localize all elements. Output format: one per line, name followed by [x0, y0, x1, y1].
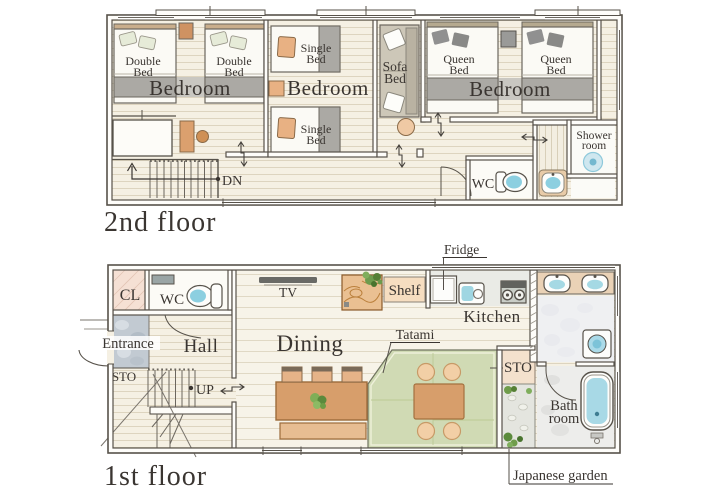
svg-text:Shelf: Shelf [389, 283, 421, 299]
svg-text:Bedroom: Bedroom [287, 76, 369, 100]
svg-text:2nd floor: 2nd floor [104, 207, 216, 238]
svg-text:Bed: Bed [449, 63, 468, 77]
svg-text:UP: UP [196, 383, 214, 398]
svg-text:Entrance: Entrance [102, 336, 154, 352]
svg-text:DN: DN [222, 174, 242, 189]
svg-text:Bedroom: Bedroom [149, 76, 231, 100]
svg-text:1st floor: 1st floor [104, 461, 207, 492]
svg-text:WC: WC [472, 177, 495, 192]
svg-text:CL: CL [120, 287, 140, 304]
svg-text:Fridge: Fridge [444, 242, 479, 257]
svg-text:STO: STO [112, 369, 136, 384]
svg-text:STO: STO [504, 360, 532, 376]
svg-text:room: room [549, 411, 580, 427]
svg-text:Dining: Dining [277, 331, 344, 356]
svg-text:WC: WC [160, 292, 184, 308]
svg-text:Hall: Hall [184, 336, 219, 357]
svg-text:Bed: Bed [306, 133, 325, 147]
svg-text:room: room [582, 140, 606, 152]
svg-text:Bed: Bed [306, 52, 325, 66]
svg-text:Bed: Bed [384, 71, 406, 86]
svg-text:TV: TV [279, 285, 297, 300]
svg-text:Kitchen: Kitchen [463, 307, 520, 326]
svg-text:Bedroom: Bedroom [469, 77, 551, 101]
svg-text:Tatami: Tatami [396, 328, 435, 343]
svg-text:Bed: Bed [546, 63, 565, 77]
svg-text:Japanese garden: Japanese garden [513, 468, 608, 484]
